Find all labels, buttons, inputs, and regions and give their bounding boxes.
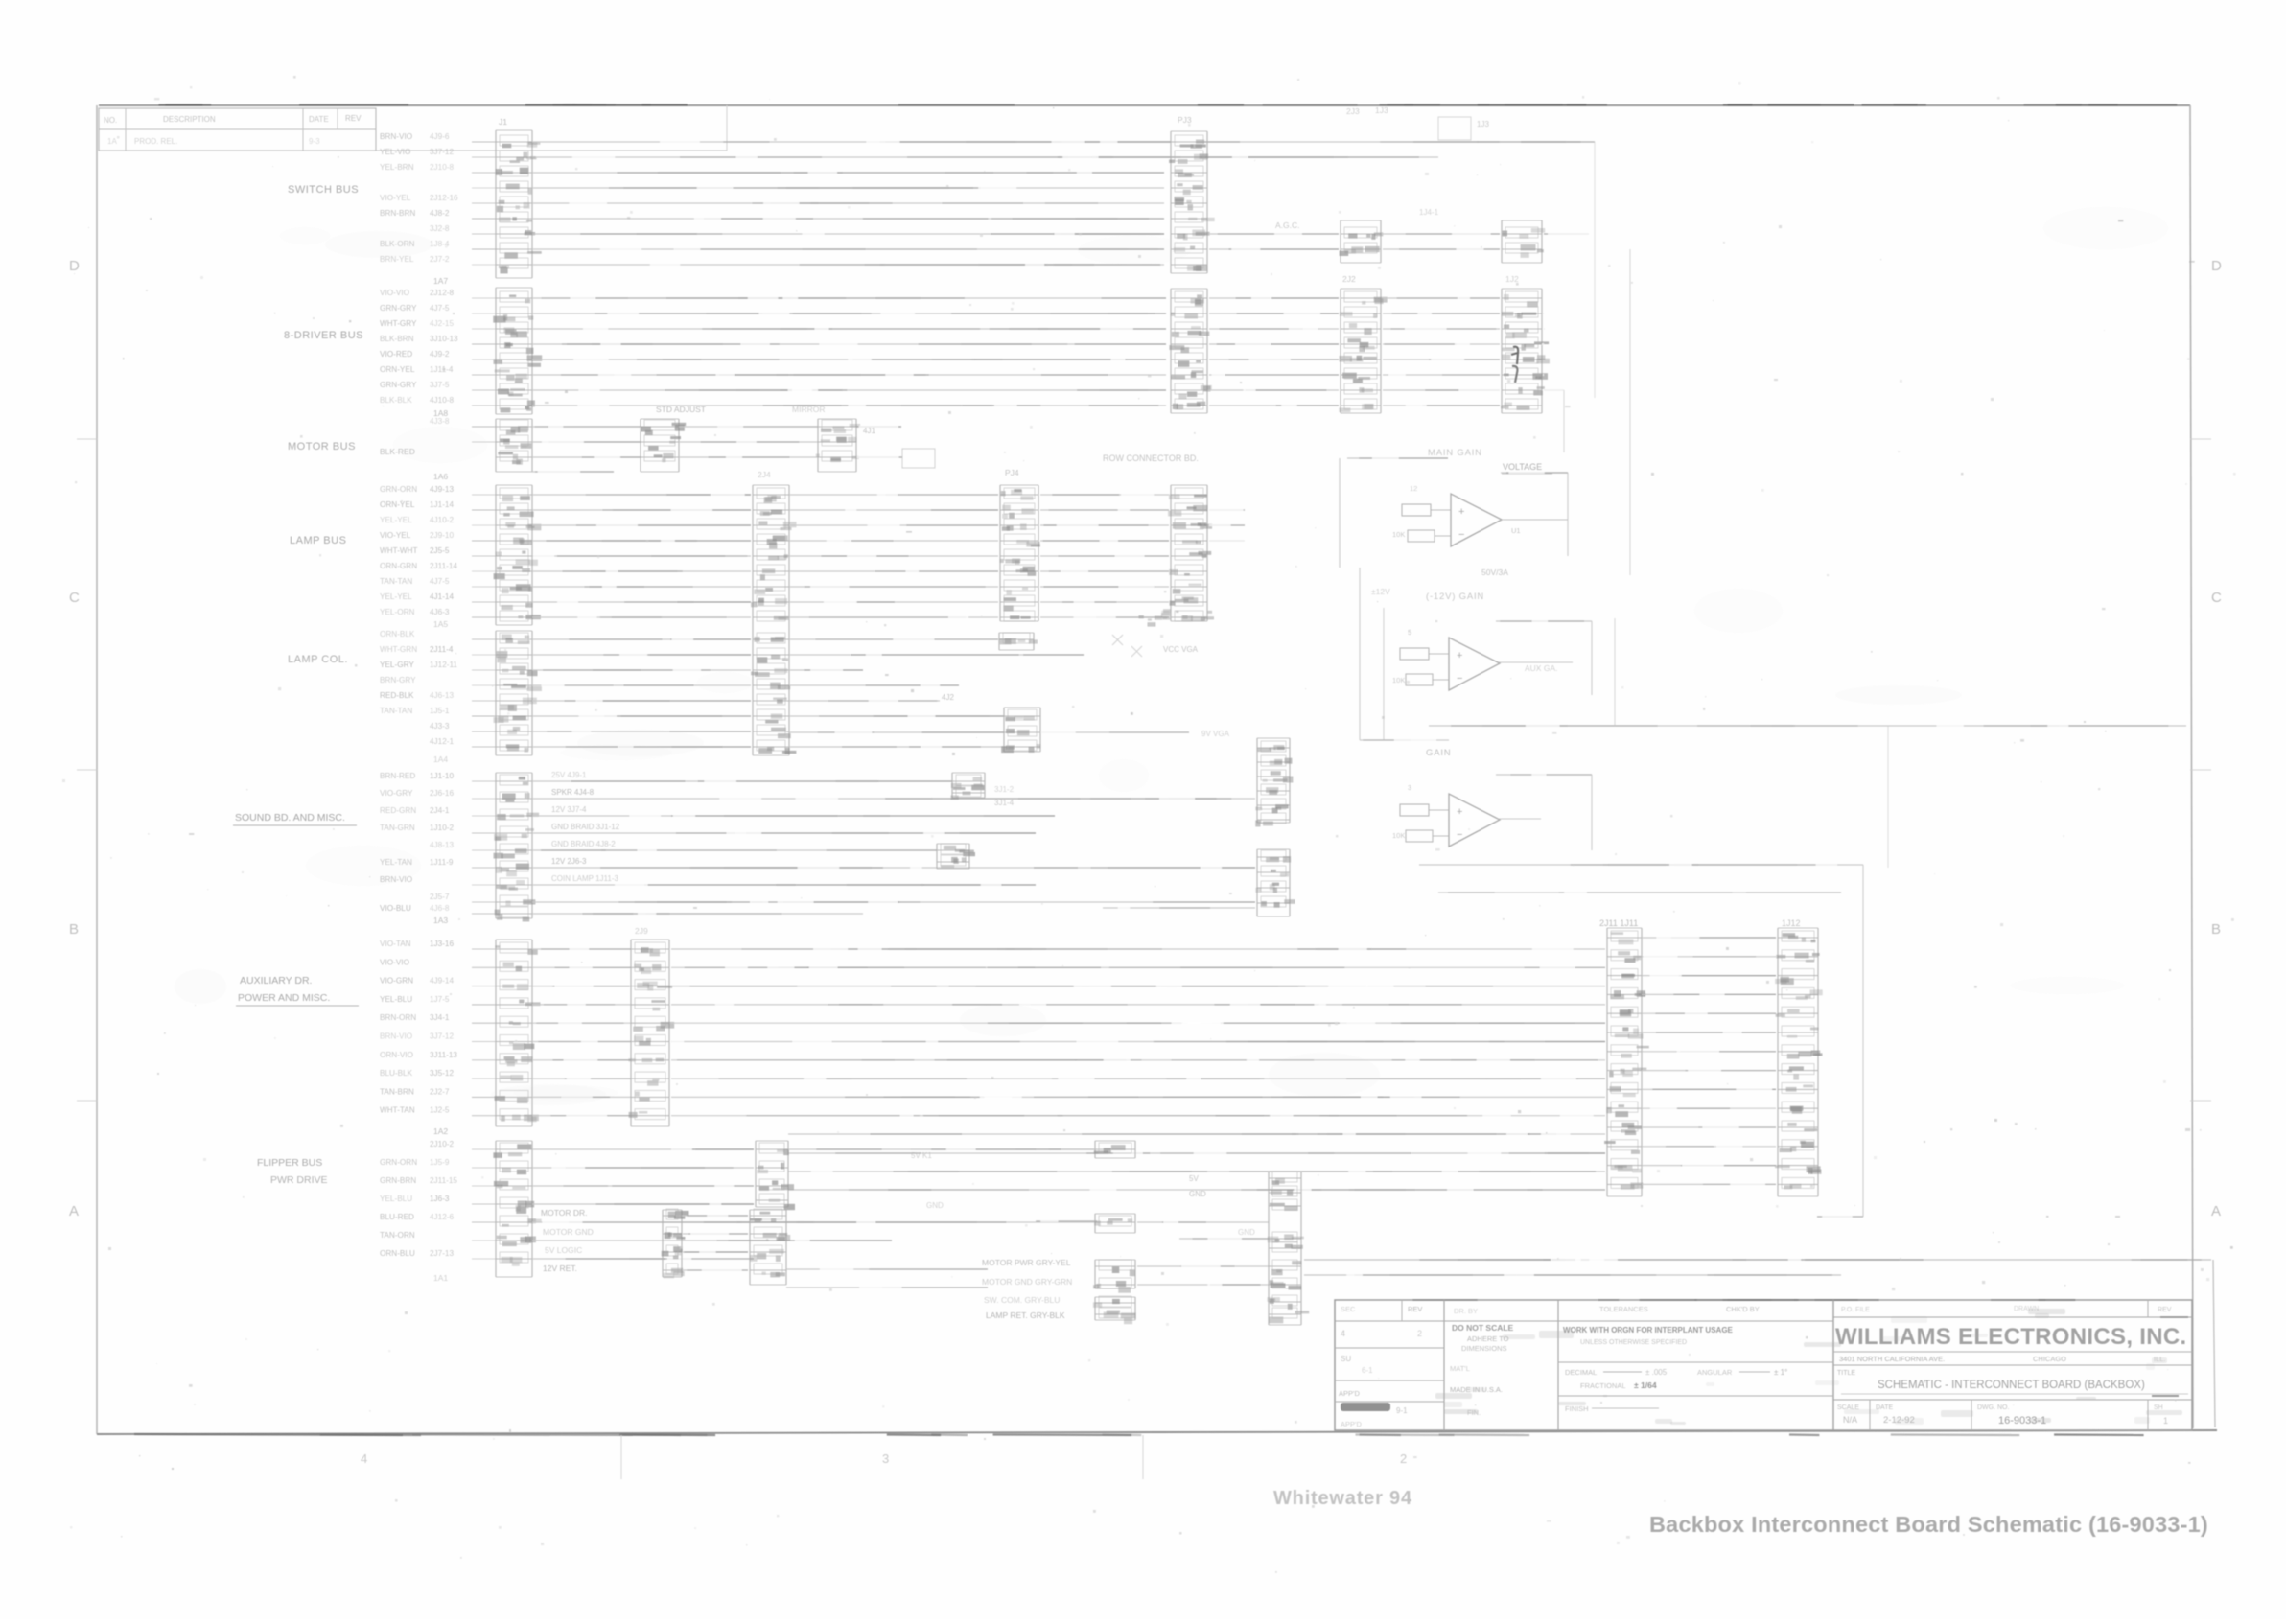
svg-text:BLU-RED: BLU-RED xyxy=(380,1213,414,1221)
svg-text:GAIN: GAIN xyxy=(1426,748,1451,758)
svg-text:GND BRAID 4J8-2: GND BRAID 4J8-2 xyxy=(551,840,616,848)
svg-text:2J2: 2J2 xyxy=(1342,274,1356,284)
svg-text:2J6-16: 2J6-16 xyxy=(430,789,454,798)
svg-text:4: 4 xyxy=(361,1451,367,1466)
svg-text:VIO-YEL: VIO-YEL xyxy=(380,194,411,202)
svg-text:−: − xyxy=(1458,529,1464,541)
svg-text:1J7-5: 1J7-5 xyxy=(430,995,450,1004)
svg-text:1J1-10: 1J1-10 xyxy=(430,772,454,780)
svg-text:1J2-5: 1J2-5 xyxy=(430,1106,450,1115)
svg-text:MOTOR BUS: MOTOR BUS xyxy=(288,441,356,452)
svg-text:±12V: ±12V xyxy=(1371,587,1390,596)
svg-text:1J3: 1J3 xyxy=(1375,105,1388,115)
svg-text:4: 4 xyxy=(1341,1329,1345,1338)
svg-text:MOTOR GND GRY-GRN: MOTOR GND GRY-GRN xyxy=(982,1277,1072,1287)
svg-text:VIO-GRY: VIO-GRY xyxy=(380,789,413,798)
svg-text:GRN-ORN: GRN-ORN xyxy=(380,1158,417,1167)
svg-text:WHT-GRY: WHT-GRY xyxy=(380,319,417,328)
svg-text:1A6: 1A6 xyxy=(433,472,448,481)
svg-text:6-1: 6-1 xyxy=(1362,1366,1373,1375)
svg-text:2J5-5: 2J5-5 xyxy=(430,546,450,555)
svg-text:± .005: ± .005 xyxy=(1645,1368,1668,1377)
svg-text:2: 2 xyxy=(1400,1451,1407,1466)
svg-text:YEL-YEL: YEL-YEL xyxy=(380,516,412,524)
svg-text:9V VGA: 9V VGA xyxy=(1201,730,1230,738)
svg-text:BRN-BRN: BRN-BRN xyxy=(380,209,415,218)
svg-text:TITLE: TITLE xyxy=(1837,1370,1855,1377)
svg-text:APP'D: APP'D xyxy=(1341,1420,1362,1428)
svg-text:1J1-14: 1J1-14 xyxy=(430,500,454,509)
svg-text:GND: GND xyxy=(1238,1228,1255,1237)
svg-text:2J11-15: 2J11-15 xyxy=(430,1176,457,1185)
svg-text:2J4-1: 2J4-1 xyxy=(430,806,450,815)
svg-text:4J3-3: 4J3-3 xyxy=(430,722,450,731)
svg-text:1J10-2: 1J10-2 xyxy=(430,824,454,832)
svg-text:4J7-5: 4J7-5 xyxy=(430,304,450,313)
svg-text:LAMP BUS: LAMP BUS xyxy=(290,535,346,546)
svg-text:B: B xyxy=(69,921,79,938)
svg-text:MOTOR GND: MOTOR GND xyxy=(543,1227,594,1237)
svg-text:2J9: 2J9 xyxy=(635,926,648,936)
svg-text:3401 NORTH CALIFORNIA AVE.: 3401 NORTH CALIFORNIA AVE. xyxy=(1839,1355,1945,1363)
svg-text:1J11-9: 1J11-9 xyxy=(430,858,454,867)
svg-text:YEL-ORN: YEL-ORN xyxy=(380,608,414,616)
svg-text:A: A xyxy=(2211,1203,2221,1219)
svg-text:FRACTIONAL: FRACTIONAL xyxy=(1580,1381,1626,1390)
svg-text:TAN-BRN: TAN-BRN xyxy=(380,1087,414,1096)
svg-text:2J9-10: 2J9-10 xyxy=(430,531,454,540)
svg-text:4J12-1: 4J12-1 xyxy=(430,737,454,746)
svg-text:UNLESS OTHERWISE SPECIFIED: UNLESS OTHERWISE SPECIFIED xyxy=(1580,1339,1687,1346)
svg-text:YEL-BLU: YEL-BLU xyxy=(380,1195,412,1203)
svg-text:4J2: 4J2 xyxy=(942,693,954,702)
svg-text:2J11-14: 2J11-14 xyxy=(430,562,457,570)
svg-text:SOUND BD. AND MISC.: SOUND BD. AND MISC. xyxy=(235,812,345,824)
svg-text:1: 1 xyxy=(2163,1416,2168,1426)
svg-text:ANGULAR: ANGULAR xyxy=(1697,1368,1733,1377)
svg-text:1J12: 1J12 xyxy=(1782,918,1801,928)
svg-text:DECIMAL: DECIMAL xyxy=(1565,1368,1597,1377)
svg-text:DESCRIPTION: DESCRIPTION xyxy=(163,115,216,124)
svg-text:3J4-1: 3J4-1 xyxy=(430,1013,450,1022)
svg-text:4J7-5: 4J7-5 xyxy=(430,577,450,586)
svg-text:YEL-YEL: YEL-YEL xyxy=(380,592,412,601)
svg-text:4J6-3: 4J6-3 xyxy=(430,608,450,616)
svg-text:TAN-ORN: TAN-ORN xyxy=(380,1231,415,1240)
svg-text:1J12-11: 1J12-11 xyxy=(430,661,457,669)
svg-text:4J8-13: 4J8-13 xyxy=(430,841,454,849)
svg-text:3J5-12: 3J5-12 xyxy=(430,1069,454,1078)
svg-text:C: C xyxy=(2211,590,2222,606)
svg-text:ORN-VIO: ORN-VIO xyxy=(380,1051,413,1059)
svg-text:± 1/64: ± 1/64 xyxy=(1634,1380,1657,1390)
svg-text:2J11-4: 2J11-4 xyxy=(430,645,454,654)
svg-text:AUX GA.: AUX GA. xyxy=(1525,663,1557,673)
svg-text:4J9-2: 4J9-2 xyxy=(430,350,450,359)
svg-text:FINISH: FINISH xyxy=(1565,1404,1589,1413)
svg-text:10K: 10K xyxy=(1392,530,1405,539)
svg-text:3J10-13: 3J10-13 xyxy=(430,335,458,343)
svg-text:WHT-GRN: WHT-GRN xyxy=(380,645,417,654)
svg-text:4J6-8: 4J6-8 xyxy=(430,904,450,913)
svg-text:SEC: SEC xyxy=(1341,1305,1356,1313)
svg-text:REV: REV xyxy=(2158,1307,2172,1313)
svg-text:9-3: 9-3 xyxy=(309,137,320,146)
svg-text:3J1-2: 3J1-2 xyxy=(994,785,1015,794)
svg-text:1J11-4: 1J11-4 xyxy=(430,365,454,374)
svg-text:U1: U1 xyxy=(1511,526,1521,535)
svg-text:VIO-VIO: VIO-VIO xyxy=(380,958,409,966)
svg-text:AUXILIARY DR.: AUXILIARY DR. xyxy=(240,975,312,986)
svg-text:BRN-GRY: BRN-GRY xyxy=(380,676,416,684)
svg-text:REV: REV xyxy=(345,114,362,123)
svg-text:+: + xyxy=(1457,650,1462,661)
svg-text:POWER AND MISC.: POWER AND MISC. xyxy=(238,992,330,1004)
svg-text:YEL-GRY: YEL-GRY xyxy=(380,661,414,669)
svg-text:5V: 5V xyxy=(1189,1174,1199,1183)
svg-text:4J6-13: 4J6-13 xyxy=(430,691,454,700)
svg-text:YEL-BRN: YEL-BRN xyxy=(380,163,414,172)
svg-text:LAMP COL.: LAMP COL. xyxy=(288,654,348,665)
svg-text:2J2-7: 2J2-7 xyxy=(430,1087,450,1096)
svg-text:4J9-13: 4J9-13 xyxy=(430,485,454,494)
svg-text:2J5-7: 2J5-7 xyxy=(430,893,450,901)
svg-text:1J6-3: 1J6-3 xyxy=(430,1195,450,1203)
svg-text:4J9-14: 4J9-14 xyxy=(430,977,454,986)
svg-text:SWITCH BUS: SWITCH BUS xyxy=(288,184,359,196)
svg-text:GND: GND xyxy=(1189,1190,1206,1198)
svg-text:SPKR 4J4-8: SPKR 4J4-8 xyxy=(551,788,595,797)
svg-text:P.O. FILE: P.O. FILE xyxy=(1841,1307,1870,1313)
svg-text:+: + xyxy=(1457,806,1462,818)
svg-text:J1: J1 xyxy=(499,117,507,127)
svg-text:3J7-5: 3J7-5 xyxy=(430,381,450,389)
svg-text:VIO-BLU: VIO-BLU xyxy=(380,904,411,913)
svg-text:10K: 10K xyxy=(1392,831,1405,840)
svg-text:ORN-BLK: ORN-BLK xyxy=(380,630,415,638)
svg-text:WHT-TAN: WHT-TAN xyxy=(380,1106,415,1115)
svg-text:MOTOR DR.: MOTOR DR. xyxy=(541,1208,587,1218)
svg-text:2J10-2: 2J10-2 xyxy=(430,1140,454,1148)
svg-text:GRN-GRY: GRN-GRY xyxy=(380,381,417,389)
svg-text:SH: SH xyxy=(2154,1404,2163,1411)
svg-text:10K: 10K xyxy=(1392,676,1405,684)
svg-text:APP'D: APP'D xyxy=(1339,1389,1360,1398)
svg-text:MAIN GAIN: MAIN GAIN xyxy=(1428,448,1482,458)
svg-text:BRN-RED: BRN-RED xyxy=(380,772,415,780)
svg-text:VIO-YEL: VIO-YEL xyxy=(380,531,411,540)
svg-text:ADHERE TO: ADHERE TO xyxy=(1467,1334,1509,1343)
svg-text:BLK-BLK: BLK-BLK xyxy=(380,396,412,405)
svg-text:50V/3A: 50V/3A xyxy=(1481,568,1508,577)
svg-text:PJ4: PJ4 xyxy=(1005,468,1019,477)
svg-text:WORK WITH ORGN FOR INTERPLANT: WORK WITH ORGN FOR INTERPLANT USAGE xyxy=(1563,1326,1734,1334)
svg-text:SU: SU xyxy=(1341,1355,1351,1363)
svg-text:DO NOT SCALE: DO NOT SCALE xyxy=(1452,1323,1514,1333)
svg-text:1J5-9: 1J5-9 xyxy=(430,1158,450,1167)
svg-text:PROD. REL.: PROD. REL. xyxy=(134,137,177,146)
svg-text:YEL-VIO: YEL-VIO xyxy=(380,148,410,156)
svg-text:N/A: N/A xyxy=(1843,1415,1857,1425)
svg-text:2J11 1J11: 2J11 1J11 xyxy=(1599,918,1638,928)
svg-text:25V 4J9-1: 25V 4J9-1 xyxy=(551,771,587,779)
svg-text:1A7: 1A7 xyxy=(433,276,448,286)
svg-text:5: 5 xyxy=(1408,628,1411,637)
svg-text:12V 2J6-3: 12V 2J6-3 xyxy=(551,857,587,866)
svg-text:GND: GND xyxy=(926,1201,944,1210)
svg-text:1A4: 1A4 xyxy=(433,754,448,764)
svg-text:4J1: 4J1 xyxy=(863,427,875,435)
svg-text:5V K1: 5V K1 xyxy=(911,1151,932,1160)
svg-text:4J10-8: 4J10-8 xyxy=(430,396,454,405)
svg-text:STD ADJUST: STD ADJUST xyxy=(656,405,706,414)
svg-text:TAN-TAN: TAN-TAN xyxy=(380,577,412,586)
svg-text:5V LOGIC: 5V LOGIC xyxy=(545,1245,582,1255)
svg-text:DWG. NO.: DWG. NO. xyxy=(1977,1404,2009,1411)
svg-text:2J7-2: 2J7-2 xyxy=(430,255,450,264)
svg-text:2J12-8: 2J12-8 xyxy=(430,289,454,297)
svg-text:ORN-GRN: ORN-GRN xyxy=(380,562,417,570)
svg-text:VOLTAGE: VOLTAGE xyxy=(1503,462,1542,472)
svg-text:DIMENSIONS: DIMENSIONS xyxy=(1461,1344,1507,1353)
svg-text:+: + xyxy=(1458,506,1464,518)
svg-text:BRN-VIO: BRN-VIO xyxy=(380,1032,412,1041)
svg-text:TOLERANCES: TOLERANCES xyxy=(1599,1305,1648,1313)
svg-text:VIO-VIO: VIO-VIO xyxy=(380,289,409,297)
svg-text:DATE: DATE xyxy=(309,115,329,124)
svg-text:NO.: NO. xyxy=(104,116,117,125)
svg-text:DR. BY: DR. BY xyxy=(1454,1307,1478,1315)
svg-text:4J2-15: 4J2-15 xyxy=(430,319,454,328)
svg-text:MOTOR PWR GRY-YEL: MOTOR PWR GRY-YEL xyxy=(982,1258,1071,1267)
svg-text:3: 3 xyxy=(1408,783,1411,792)
svg-text:B: B xyxy=(2211,921,2221,938)
svg-text:A: A xyxy=(69,1203,79,1219)
svg-text:3J7-12: 3J7-12 xyxy=(430,1032,454,1041)
svg-text:VIO-TAN: VIO-TAN xyxy=(380,940,411,948)
svg-text:MIRROR: MIRROR xyxy=(792,405,825,414)
svg-text:12: 12 xyxy=(1410,484,1417,493)
svg-text:RED-GRN: RED-GRN xyxy=(380,806,416,815)
svg-text:2J4: 2J4 xyxy=(758,470,771,479)
svg-text:2J10-8: 2J10-8 xyxy=(430,163,454,172)
svg-text:RED-BLK: RED-BLK xyxy=(380,691,414,700)
svg-text:GND BRAID 3J1-12: GND BRAID 3J1-12 xyxy=(551,823,620,831)
svg-text:ORN-YEL: ORN-YEL xyxy=(380,500,415,509)
svg-text:TAN-TAN: TAN-TAN xyxy=(380,707,412,715)
svg-text:C: C xyxy=(69,590,80,606)
svg-text:Whitewater 94: Whitewater 94 xyxy=(1273,1488,1412,1509)
svg-text:SCHEMATIC - INTERCONNECT BOAR: SCHEMATIC - INTERCONNECT BOARD (BACKBOX) xyxy=(1878,1380,2145,1391)
svg-text:3J1-4: 3J1-4 xyxy=(994,799,1015,807)
svg-text:4J10-2: 4J10-2 xyxy=(430,516,454,524)
svg-text:GRN-BRN: GRN-BRN xyxy=(380,1176,416,1185)
svg-text:1J4-1: 1J4-1 xyxy=(1419,208,1439,217)
svg-text:12V RET.: 12V RET. xyxy=(543,1264,577,1273)
svg-text:2J7-13: 2J7-13 xyxy=(430,1249,454,1258)
svg-text:−: − xyxy=(1457,673,1462,684)
svg-text:BRN-ORN: BRN-ORN xyxy=(380,1013,416,1022)
svg-text:1J5-1: 1J5-1 xyxy=(430,707,450,715)
svg-text:1A: 1A xyxy=(107,137,117,146)
svg-text:FLIPPER BUS: FLIPPER BUS xyxy=(257,1157,322,1169)
svg-text:BLU-BLK: BLU-BLK xyxy=(380,1069,413,1078)
svg-text:1A3: 1A3 xyxy=(433,916,448,925)
svg-text:CHICAGO: CHICAGO xyxy=(2033,1355,2066,1363)
svg-text:REV: REV xyxy=(1408,1305,1422,1313)
svg-text:GRN-ORN: GRN-ORN xyxy=(380,485,417,494)
svg-text:1J3-16: 1J3-16 xyxy=(430,940,454,948)
svg-text:D: D xyxy=(69,258,80,274)
svg-text:4J12-6: 4J12-6 xyxy=(430,1213,454,1221)
svg-text:2J3: 2J3 xyxy=(1346,106,1360,116)
svg-text:3: 3 xyxy=(882,1451,889,1466)
svg-text:BLK-BRN: BLK-BRN xyxy=(380,335,414,343)
svg-text:2: 2 xyxy=(1417,1329,1422,1338)
svg-text:ROW CONNECTOR BD.: ROW CONNECTOR BD. xyxy=(1103,453,1199,463)
svg-text:1J2: 1J2 xyxy=(1505,274,1519,284)
svg-text:12V 3J7-4: 12V 3J7-4 xyxy=(551,805,587,814)
svg-text:MAT'L: MAT'L xyxy=(1450,1364,1470,1373)
svg-text:9-1: 9-1 xyxy=(1396,1406,1408,1415)
svg-text:BRN-VIO: BRN-VIO xyxy=(380,132,412,141)
svg-text:1J3: 1J3 xyxy=(1477,120,1489,128)
svg-text:± 1°: ± 1° xyxy=(1774,1368,1787,1377)
svg-text:PJ3: PJ3 xyxy=(1178,115,1192,125)
svg-text:3J2-8: 3J2-8 xyxy=(430,224,450,233)
svg-text:4J8-2: 4J8-2 xyxy=(430,209,450,218)
svg-text:Backbox Interconnect Board Sch: Backbox Interconnect Board Schematic (16… xyxy=(1649,1512,2208,1537)
svg-text:(-12V) GAIN: (-12V) GAIN xyxy=(1426,592,1484,602)
svg-text:8-DRIVER BUS: 8-DRIVER BUS xyxy=(284,330,363,341)
svg-text:SW. COM. GRY-BLU: SW. COM. GRY-BLU xyxy=(984,1295,1060,1305)
svg-text:TAN-GRN: TAN-GRN xyxy=(380,824,415,832)
svg-text:CHK'D BY: CHK'D BY xyxy=(1726,1305,1760,1313)
svg-text:4J3-8: 4J3-8 xyxy=(430,417,450,426)
svg-text:3J11-13: 3J11-13 xyxy=(430,1051,457,1059)
svg-text:ORN-YEL: ORN-YEL xyxy=(380,365,415,374)
svg-text:A.G.C.: A.G.C. xyxy=(1275,220,1300,230)
svg-text:VIO-GRN: VIO-GRN xyxy=(380,977,413,986)
svg-text:GRN-GRY: GRN-GRY xyxy=(380,304,417,313)
svg-text:4J9-6: 4J9-6 xyxy=(430,132,450,141)
svg-text:COIN LAMP 1J11-3: COIN LAMP 1J11-3 xyxy=(551,874,619,883)
svg-text:2J12-16: 2J12-16 xyxy=(430,194,458,202)
svg-text:1A2: 1A2 xyxy=(433,1126,448,1136)
svg-text:LAMP RET. GRY-BLK: LAMP RET. GRY-BLK xyxy=(986,1311,1065,1320)
svg-text:3J7-12: 3J7-12 xyxy=(430,148,454,156)
svg-text:D: D xyxy=(2211,258,2222,274)
svg-text:1A1: 1A1 xyxy=(433,1273,448,1283)
svg-text:PWR DRIVE: PWR DRIVE xyxy=(270,1174,328,1186)
svg-text:YEL-BLU: YEL-BLU xyxy=(380,995,412,1004)
svg-text:−: − xyxy=(1457,829,1462,841)
svg-text:VIO-RED: VIO-RED xyxy=(380,350,412,359)
svg-text:4J1-14: 4J1-14 xyxy=(430,592,454,601)
svg-text:WHT-WHT: WHT-WHT xyxy=(380,546,418,555)
svg-text:1A5: 1A5 xyxy=(433,619,448,629)
svg-text:VCC VGA: VCC VGA xyxy=(1163,645,1199,654)
svg-text:ORN-BLU: ORN-BLU xyxy=(380,1249,415,1258)
